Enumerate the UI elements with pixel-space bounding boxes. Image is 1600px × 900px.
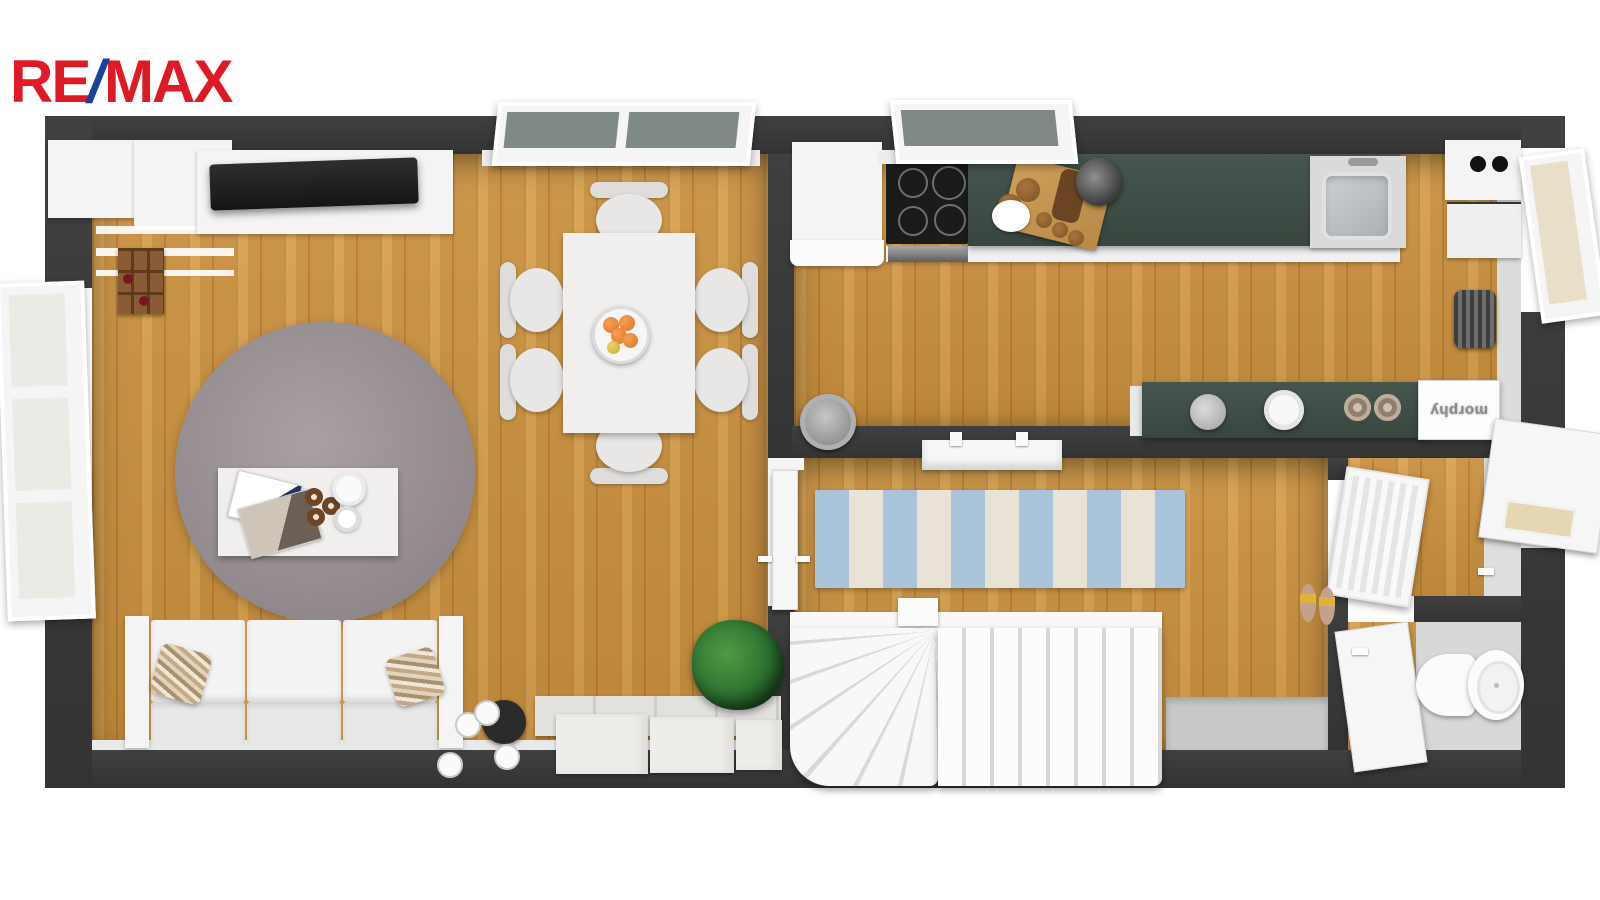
open-window-kitchen <box>890 100 1079 164</box>
open-window-left <box>0 281 96 622</box>
dining-chair <box>510 268 564 332</box>
faucet <box>1348 158 1378 166</box>
window-pane <box>504 112 620 148</box>
cooktop <box>886 156 968 244</box>
front-door-window <box>1503 500 1576 539</box>
dining-chair <box>694 268 748 332</box>
stair-stringer <box>790 612 1162 628</box>
kettle <box>1076 158 1122 206</box>
boiler-front <box>1447 202 1521 258</box>
toilet-cistern <box>1468 650 1524 720</box>
cookie <box>1052 222 1068 238</box>
hall-radiator <box>922 440 1062 470</box>
sofa-seat-cushion <box>343 702 437 746</box>
wall-living-kitchen <box>768 154 794 460</box>
boiler-vent <box>1492 156 1508 172</box>
storage-box <box>736 720 782 770</box>
hall-door-open <box>772 470 798 610</box>
sofa-seat-cushion <box>151 702 245 746</box>
oven-front <box>888 246 968 262</box>
door-handle <box>758 556 772 562</box>
fruit-bowl <box>592 306 650 364</box>
radiator <box>1454 290 1496 348</box>
boiler-vent <box>1470 156 1486 172</box>
door-handle <box>796 556 810 562</box>
window-pane <box>1530 161 1587 305</box>
mug <box>1374 394 1401 421</box>
potted-plant <box>692 620 784 710</box>
stair-landing <box>1166 697 1328 750</box>
window-pane <box>9 293 68 387</box>
staircase-straight <box>938 628 1162 786</box>
wine-bottle <box>139 296 149 306</box>
lemon <box>607 341 620 354</box>
sofa-armrest-left <box>125 616 149 748</box>
window-pane <box>901 110 1059 146</box>
open-window-living <box>492 102 757 166</box>
lamp-bulb <box>494 744 520 770</box>
door-handle <box>1352 648 1368 655</box>
toilet-cistern-lid <box>1477 661 1520 714</box>
teapot <box>332 472 366 506</box>
tv <box>209 157 418 210</box>
dining-chair <box>694 348 748 412</box>
teacup <box>334 506 360 532</box>
fridge <box>792 142 882 242</box>
remax-logo: RE/MAX <box>10 52 231 112</box>
stair-newel <box>898 598 938 626</box>
logo-re: RE <box>10 48 89 115</box>
mug <box>1344 394 1371 421</box>
slipper <box>1319 587 1335 625</box>
lamp-bulb <box>437 752 463 778</box>
window-pane <box>626 112 740 148</box>
wine-bottle <box>123 274 133 284</box>
lamp-bulb <box>474 700 500 726</box>
burner <box>898 206 928 236</box>
glass-door-slats <box>1336 475 1421 598</box>
door-frame <box>768 458 804 470</box>
cookie <box>1036 212 1052 228</box>
cup <box>1190 394 1226 430</box>
donut <box>305 488 323 506</box>
plate <box>992 200 1030 232</box>
staircase-winder <box>790 628 938 786</box>
storage-box <box>650 717 734 773</box>
microwave-box-label: morphy <box>1430 402 1488 419</box>
window-pane <box>16 501 75 599</box>
wine-rack <box>118 248 164 314</box>
dining-chair <box>510 348 564 412</box>
donut <box>307 508 325 526</box>
floor-plan-render: RE/MAX <box>0 0 1600 900</box>
radiator-bracket <box>1016 432 1028 446</box>
cookie <box>1068 230 1084 246</box>
radiator-bracket <box>950 432 962 446</box>
burner <box>898 168 928 198</box>
front-door-open <box>1478 418 1600 554</box>
slipper-strap <box>1319 597 1335 606</box>
fridge-front <box>790 240 884 266</box>
slipper-strap <box>1300 594 1316 603</box>
striped-runner-rug <box>815 490 1185 588</box>
burner <box>934 204 966 236</box>
burner <box>932 166 966 200</box>
microwave-box: morphy <box>1418 380 1500 440</box>
toilet-flush-button <box>1494 683 1499 688</box>
waste-pot <box>800 394 856 450</box>
wall-wc-top <box>1414 596 1521 622</box>
storage-box <box>556 714 648 774</box>
logo-max: MAX <box>104 48 231 115</box>
window-pane <box>12 397 71 491</box>
teapot <box>1264 390 1304 430</box>
wall-cabinet-left <box>48 140 134 218</box>
door-handle <box>1478 568 1494 575</box>
orange <box>623 333 638 348</box>
sink-basin <box>1322 172 1392 240</box>
sofa-seat-cushion <box>247 702 341 746</box>
sofa-back-cushion <box>247 620 341 702</box>
slipper <box>1300 584 1316 622</box>
